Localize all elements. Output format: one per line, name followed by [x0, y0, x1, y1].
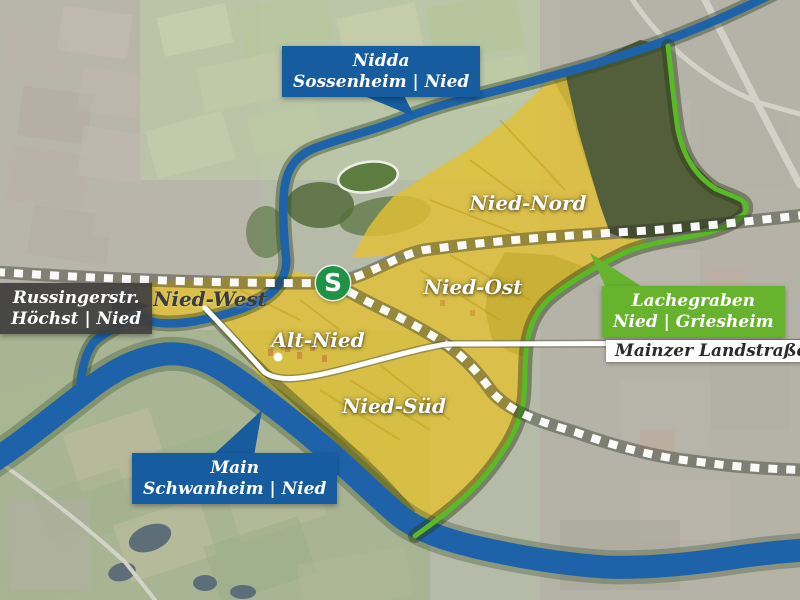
map-canvas: Nidda Sossenheim | Nied Russingerstr. Hö…: [0, 0, 800, 600]
district-label-nied-nord: Nied-Nord: [469, 191, 586, 215]
callout-main-line2: Schwanheim | Nied: [143, 479, 326, 500]
sbahn-station-marker: S: [316, 266, 350, 300]
district-label-nied-sued: Nied-Süd: [342, 394, 446, 418]
callout-russingerstr-line2: Höchst | Nied: [11, 309, 141, 330]
callout-lachegraben: Lachegraben Nied | Griesheim: [602, 286, 785, 337]
callout-main: Main Schwanheim | Nied: [132, 453, 337, 504]
callout-lachegraben-line1: Lachegraben: [613, 291, 774, 312]
district-label-alt-nied: Alt-Nied: [271, 328, 364, 352]
callout-russingerstr-line1: Russingerstr.: [11, 288, 141, 309]
callout-nidda-line1: Nidda: [293, 51, 469, 72]
callout-russingerstr: Russingerstr. Höchst | Nied: [0, 283, 152, 334]
callout-nidda-line2: Sossenheim | Nied: [293, 72, 469, 93]
callout-lachegraben-line2: Nied | Griesheim: [613, 312, 774, 333]
callout-main-line1: Main: [143, 458, 326, 479]
district-label-nied-west: Nied-West: [153, 287, 267, 311]
callout-nidda: Nidda Sossenheim | Nied: [282, 46, 480, 97]
road-label-mainzer-landstrasse: Mainzer Landstraße: [606, 340, 800, 362]
alt-nied-marker-dot: [274, 353, 283, 362]
district-label-nied-ost: Nied-Ost: [424, 275, 523, 299]
